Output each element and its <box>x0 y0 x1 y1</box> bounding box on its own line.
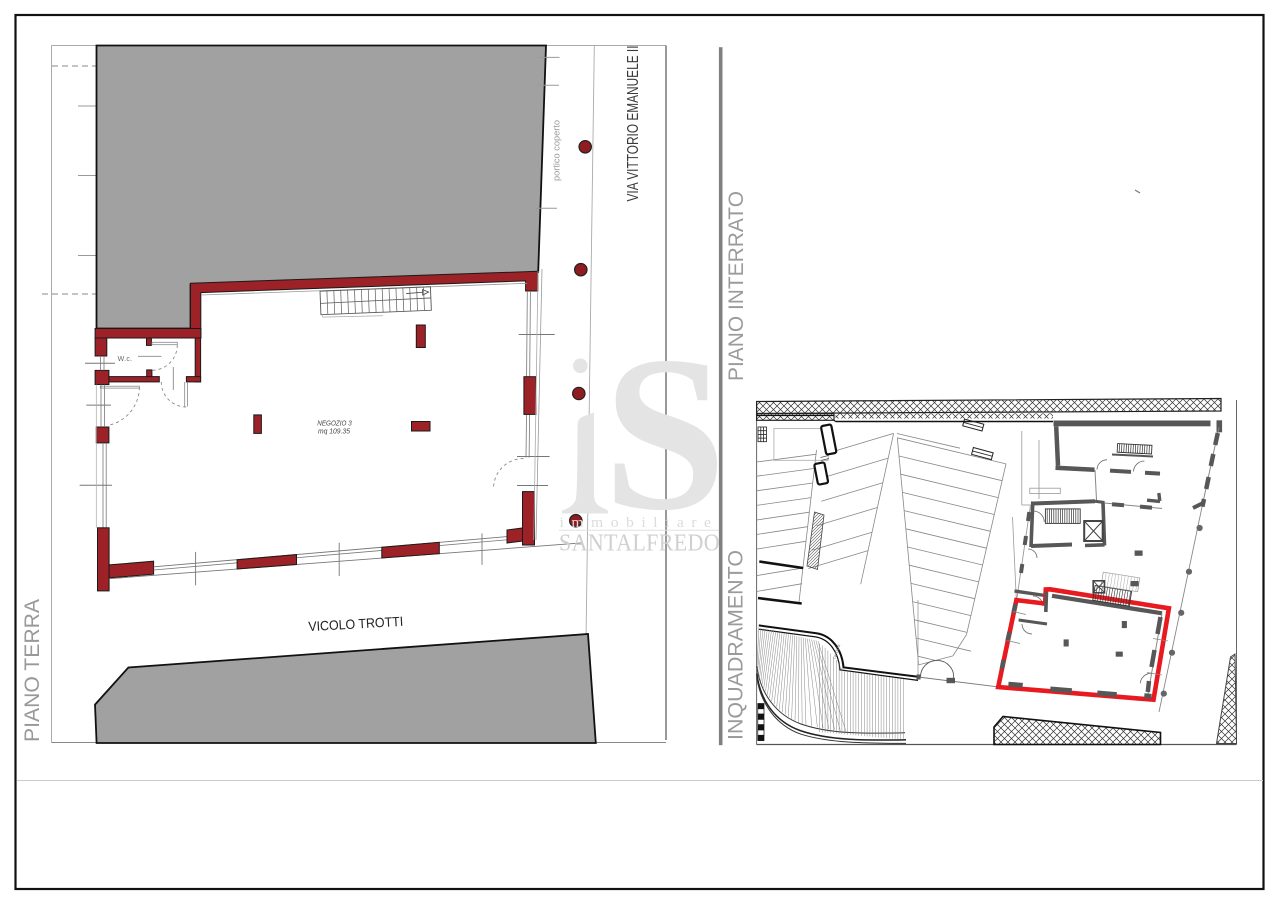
svg-text:NEGOZIO 3: NEGOZIO 3 <box>317 420 352 427</box>
svg-text:PIANO INTERRATO: PIANO INTERRATO <box>725 191 748 381</box>
svg-text:INQUADRAMENTO: INQUADRAMENTO <box>725 550 748 740</box>
svg-text:VIA VITTORIO EMANUELE II: VIA VITTORIO EMANUELE II <box>625 46 642 202</box>
svg-text:PIANO TERRA: PIANO TERRA <box>21 599 44 742</box>
svg-text:portico coperto: portico coperto <box>552 120 562 181</box>
svg-text:mq 109.35: mq 109.35 <box>318 428 350 435</box>
svg-text:immobiliare: immobiliare <box>560 515 719 531</box>
svg-text:SANTALFREDO: SANTALFREDO <box>559 531 720 557</box>
svg-text:W.c.: W.c. <box>118 356 133 363</box>
